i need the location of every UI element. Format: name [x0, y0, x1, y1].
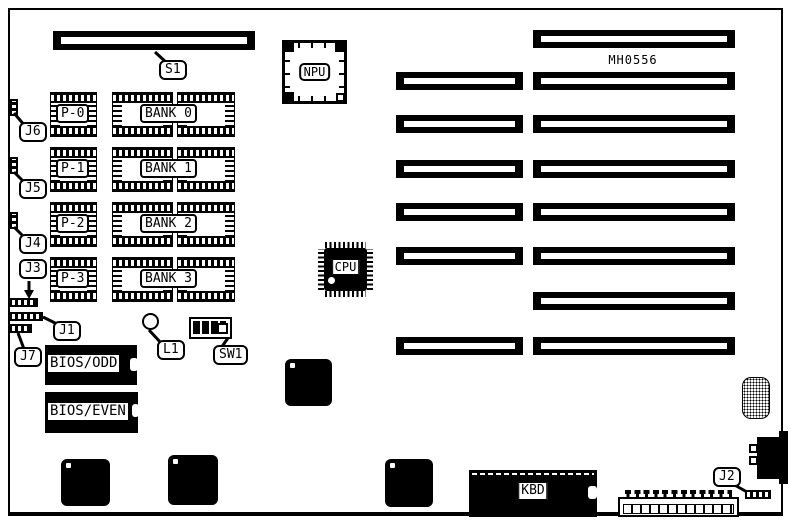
din-connector-pin — [749, 444, 758, 453]
ic-chip — [285, 359, 332, 406]
expansion-slot — [396, 72, 523, 90]
callout-j7: J7 — [14, 347, 42, 367]
callout-j3-label: J3 — [25, 261, 41, 276]
callout-j4: J4 — [19, 234, 47, 254]
npu-label: NPU — [299, 63, 331, 81]
expansion-slot — [396, 337, 523, 355]
cpu-label: CPU — [332, 259, 360, 275]
expansion-slot — [533, 203, 735, 221]
bios-odd-notch — [130, 358, 138, 371]
expansion-slot — [533, 247, 735, 265]
expansion-slot — [533, 30, 735, 48]
kbd-notch — [588, 486, 597, 499]
parity-label-2: P-2 — [56, 214, 89, 233]
slot-s1 — [53, 31, 255, 50]
din-connector-pin — [749, 456, 758, 465]
cpu-chip: CPU — [318, 242, 373, 297]
board-part-number: MH0556 — [601, 53, 665, 67]
bios-odd-chip: BIOS/ODD — [45, 345, 137, 385]
callout-j1: J1 — [53, 321, 81, 341]
callout-j3: J3 — [19, 259, 47, 279]
din-connector-body — [757, 437, 779, 479]
expansion-slot — [396, 115, 523, 133]
callout-l1: L1 — [157, 340, 185, 360]
parity-label-3: P-3 — [56, 269, 89, 288]
expansion-slot — [533, 337, 735, 355]
expansion-slot — [533, 160, 735, 178]
callout-j1-label: J1 — [59, 323, 75, 338]
header-j7 — [10, 324, 32, 333]
callout-j2: J2 — [713, 467, 741, 487]
kbd-controller: KBD — [469, 470, 597, 517]
header-j2 — [745, 490, 771, 499]
bios-odd-label: BIOS/ODD — [47, 354, 120, 373]
ic-chip — [385, 459, 433, 507]
callout-s1-label: S1 — [165, 62, 181, 77]
bank-label-1: BANK 1 — [140, 159, 197, 178]
callout-j6: J6 — [19, 122, 47, 142]
callout-j7-label: J7 — [20, 349, 36, 364]
expansion-slot — [396, 160, 523, 178]
callout-s1: S1 — [159, 60, 187, 80]
jumper-j4 — [10, 212, 18, 229]
jumper-j6 — [10, 99, 18, 116]
bios-even-label: BIOS/EVEN — [47, 402, 129, 421]
speaker — [742, 377, 770, 419]
kbd-label: KBD — [518, 482, 547, 500]
expansion-slot — [533, 72, 735, 90]
bank-label-2: BANK 2 — [140, 214, 197, 233]
callout-sw1: SW1 — [213, 345, 248, 365]
npu-pin1-notch — [336, 93, 345, 102]
parity-label-0: P-0 — [56, 104, 89, 123]
expansion-slot — [533, 292, 735, 310]
ic-chip — [61, 459, 110, 506]
motherboard-diagram: S1 NPU MH0556 P-0 BANK 0 P-1 BANK 1 P-2 … — [0, 0, 791, 527]
callout-l1-label: L1 — [163, 342, 179, 357]
expansion-slot — [396, 203, 523, 221]
parity-label-1: P-1 — [56, 159, 89, 178]
callout-j4-label: J4 — [25, 236, 41, 251]
callout-j6-label: J6 — [25, 124, 41, 139]
header-j3 — [10, 298, 38, 307]
power-connector — [618, 490, 739, 517]
led-l1 — [142, 313, 159, 330]
power-connector-cells — [623, 504, 734, 514]
expansion-slot — [396, 247, 523, 265]
ic-chip — [168, 455, 218, 505]
callout-j5-label: J5 — [25, 181, 41, 196]
bios-even-chip: BIOS/EVEN — [45, 392, 138, 433]
callout-j2-label: J2 — [719, 469, 735, 484]
expansion-slot — [533, 115, 735, 133]
npu-socket: NPU — [282, 40, 347, 104]
bios-even-notch — [132, 404, 139, 417]
callout-sw1-label: SW1 — [219, 347, 242, 362]
header-j1 — [10, 312, 43, 321]
dip-switch-sw1 — [189, 317, 232, 339]
bank-label-0: BANK 0 — [140, 104, 197, 123]
jumper-j5 — [10, 157, 18, 174]
bank-label-3: BANK 3 — [140, 269, 197, 288]
din-connector-tab — [779, 431, 788, 484]
callout-j5: J5 — [19, 179, 47, 199]
